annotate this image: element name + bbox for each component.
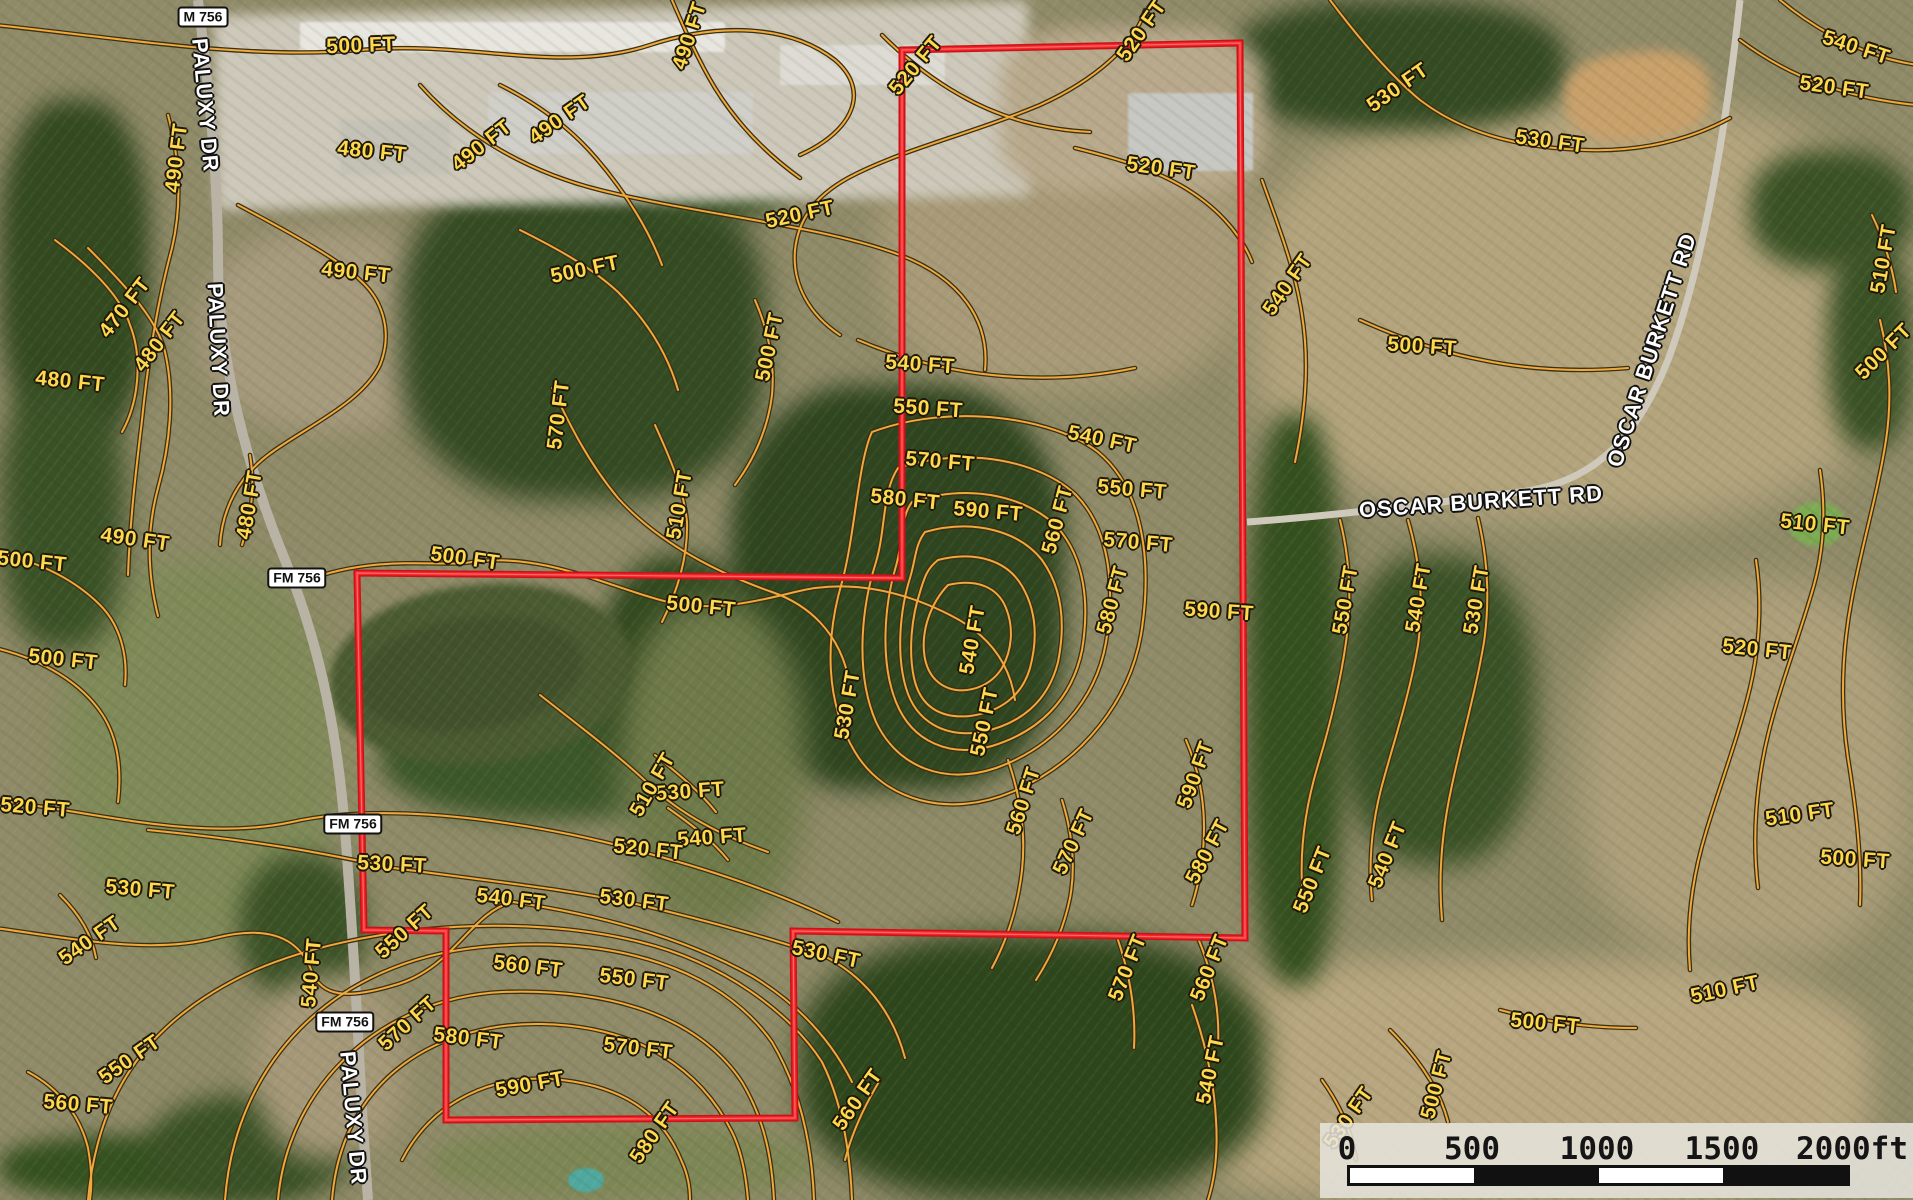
contour-elevation-label: 540 FT (475, 884, 547, 916)
contour-elevation-label: 520 FT (1798, 71, 1870, 104)
contour-elevation-label: 500 FT (429, 542, 501, 575)
contour-elevation-label: 590 FT (1183, 598, 1254, 627)
terrain-patch (568, 1168, 604, 1192)
scale-bar-tick-label: 1000 (1560, 1131, 1635, 1167)
contour-elevation-label: 490 FT (161, 122, 193, 194)
contour-elevation-label: 550 FT (371, 900, 439, 964)
contour-elevation-label: 550 FT (598, 964, 670, 996)
contour-elevation-label: 480 FT (232, 469, 268, 542)
contour-elevation-label: 530 FT (357, 851, 428, 879)
contour-elevation-label: 580 FT (1092, 563, 1133, 636)
contour-elevation-label: 500 FT (1386, 333, 1457, 362)
contour-elevation-label: 520 FT (0, 793, 71, 823)
contour-elevation-label: 500 FT (1819, 846, 1890, 875)
terrain-patch (255, 975, 405, 1160)
contour-elevation-label: 530 FT (789, 936, 862, 974)
contour-elevation-label: 540 FT (676, 824, 747, 853)
contour-elevation-label: 550 FT (892, 395, 963, 424)
contour-elevation-label: 540 FT (1065, 421, 1138, 459)
contour-elevation-label: 550 FT (1096, 475, 1167, 505)
terrain-patch (1340, 555, 1535, 865)
scale-bar: 0500100015002000ft (1320, 1123, 1913, 1198)
terrain-patch (430, 1125, 815, 1200)
contour-elevation-label: 570 FT (602, 1033, 674, 1065)
route-shield-badge: M 756 (178, 7, 229, 28)
scale-bar-segment (1599, 1168, 1723, 1183)
terrain-patch (620, 600, 805, 930)
terrain-patch (0, 380, 125, 650)
contour-elevation-label: 560 FT (492, 951, 564, 983)
scale-bar-segment (1350, 1168, 1474, 1183)
terrain-patch (1230, 0, 1565, 130)
route-shield-badge: FM 756 (315, 1012, 374, 1033)
contour-elevation-label: 540 FT (884, 351, 955, 380)
scale-bar-tick-label: 2000ft (1796, 1131, 1908, 1167)
scale-bar-tick-label: 500 (1444, 1131, 1500, 1167)
contour-elevation-label: 500 FT (326, 33, 396, 59)
scale-bar-segment (1474, 1168, 1598, 1183)
contour-elevation-label: 550 FT (95, 1030, 166, 1090)
contour-elevation-label: 560 FT (1002, 764, 1046, 838)
contour-elevation-label: 570 FT (1102, 528, 1173, 558)
contour-elevation-label: 590 FT (494, 1067, 567, 1103)
scale-bar-segments (1347, 1165, 1850, 1186)
route-shield-badge: FM 756 (267, 568, 326, 589)
contour-elevation-label: 590 FT (1173, 738, 1219, 812)
contour-elevation-label: 540 FT (55, 911, 126, 971)
contour-elevation-label: 570 FT (1048, 805, 1099, 878)
terrain-patch (488, 92, 753, 154)
scale-bar-tick-label: 0 (1338, 1131, 1357, 1167)
contour-elevation-label: 580 FT (432, 1023, 504, 1055)
scale-bar-tick-label: 1500 (1685, 1131, 1760, 1167)
contour-elevation-label: 540 FT (1819, 26, 1893, 70)
route-shield-badge: FM 756 (323, 814, 382, 835)
contour-elevation-label: 580 FT (1181, 816, 1235, 889)
contour-elevation-label: 560 FT (42, 1090, 113, 1120)
topo-aerial-map[interactable]: 500 FT490 FT480 FT490 FT490 FT520 FT520 … (0, 0, 1913, 1200)
scale-bar-segment (1723, 1168, 1847, 1183)
